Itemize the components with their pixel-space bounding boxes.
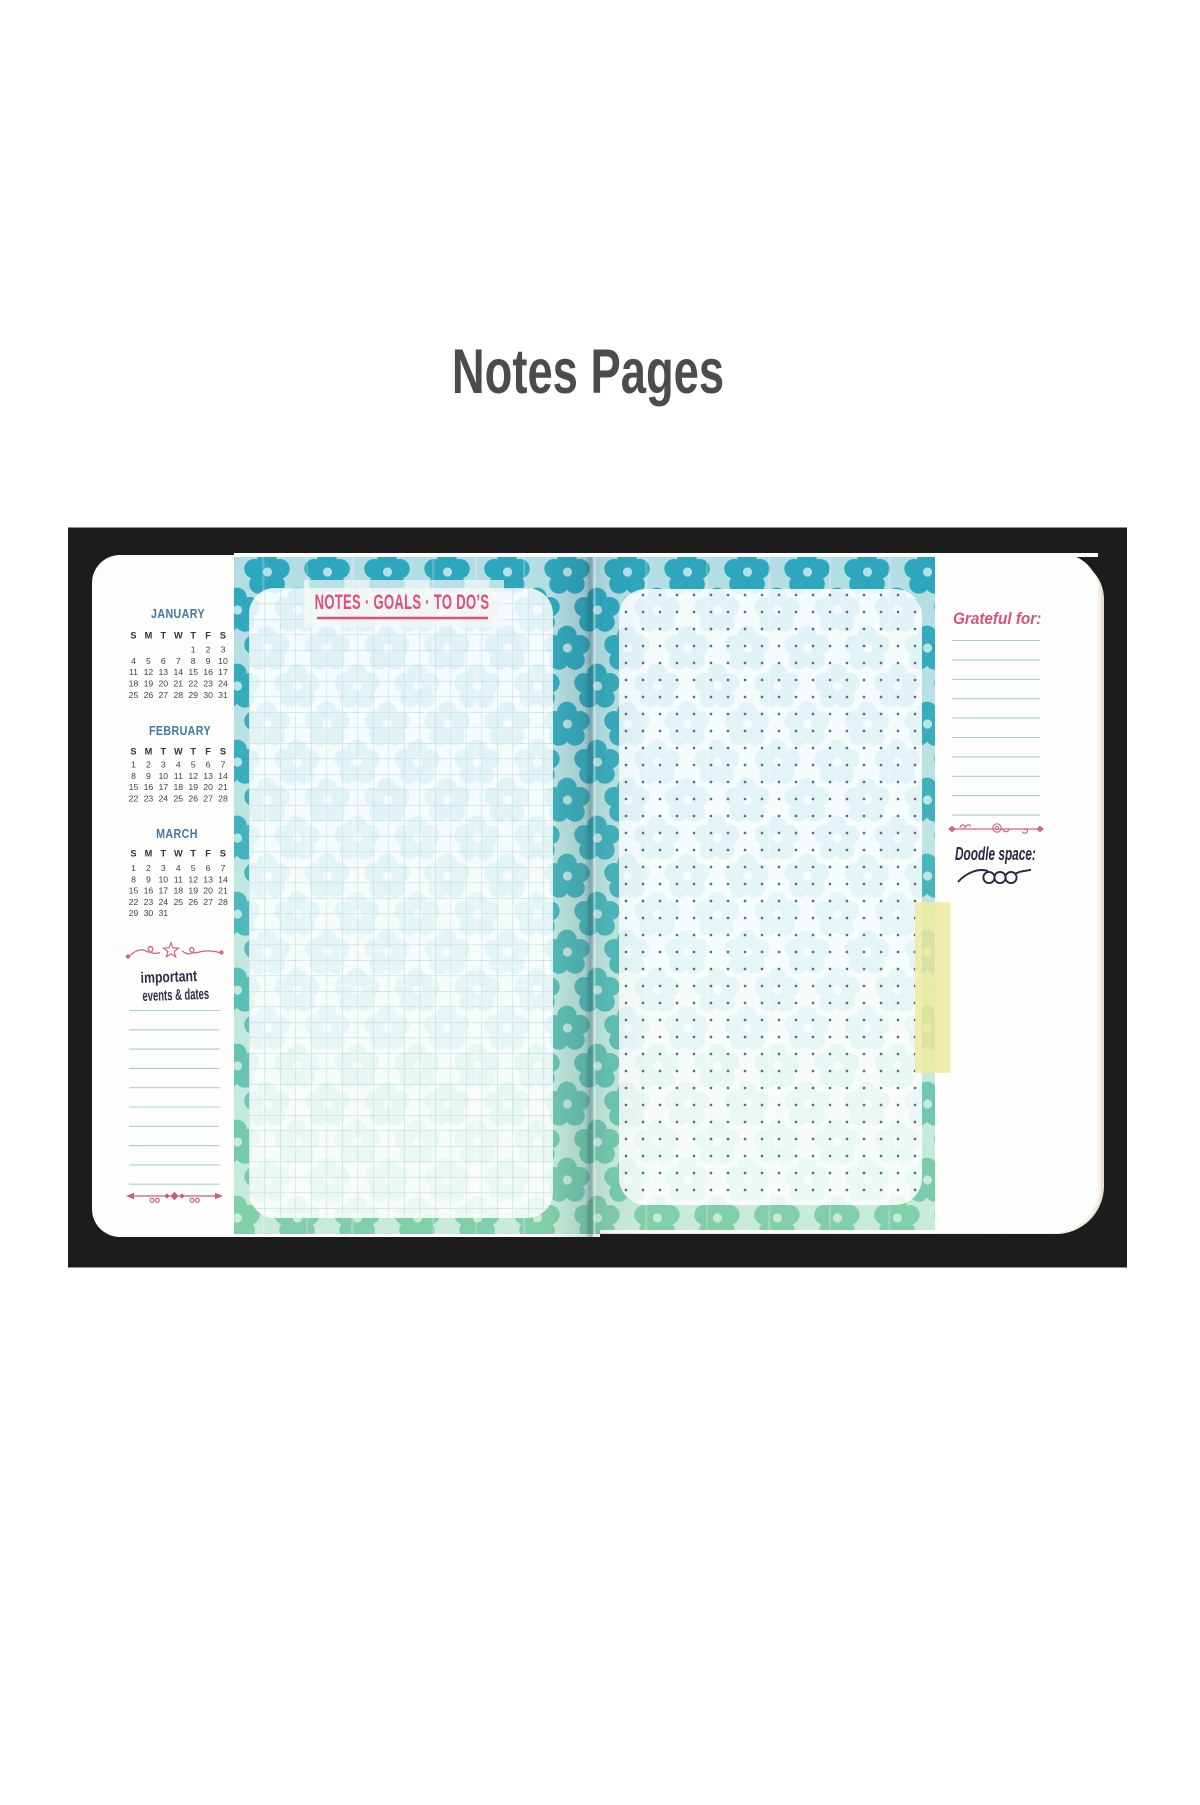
svg-text:17: 17 [218, 667, 228, 677]
svg-text:MARCH: MARCH [156, 826, 198, 841]
svg-text:22: 22 [129, 794, 139, 804]
svg-text:5: 5 [191, 863, 196, 873]
svg-text:4: 4 [131, 656, 136, 666]
svg-text:18: 18 [129, 679, 139, 689]
svg-text:12: 12 [144, 667, 154, 677]
svg-text:F: F [205, 631, 211, 641]
svg-text:27: 27 [203, 897, 213, 907]
svg-text:6: 6 [161, 656, 166, 666]
svg-text:9: 9 [206, 656, 211, 666]
svg-text:14: 14 [218, 771, 228, 781]
svg-text:5: 5 [146, 656, 151, 666]
svg-text:30: 30 [144, 908, 154, 918]
svg-text:17: 17 [158, 886, 168, 896]
svg-text:15: 15 [129, 886, 139, 896]
svg-text:S: S [220, 849, 226, 859]
svg-text:S: S [220, 747, 226, 757]
svg-text:17: 17 [158, 782, 168, 792]
svg-text:25: 25 [173, 897, 183, 907]
svg-text:1: 1 [191, 645, 196, 655]
svg-text:23: 23 [144, 897, 154, 907]
svg-text:18: 18 [173, 782, 183, 792]
svg-text:28: 28 [218, 794, 228, 804]
svg-text:M: M [145, 631, 153, 641]
svg-text:3: 3 [221, 645, 226, 655]
svg-text:T: T [160, 747, 166, 757]
svg-text:7: 7 [221, 863, 226, 873]
svg-text:16: 16 [144, 886, 154, 896]
svg-text:W: W [174, 849, 183, 859]
svg-text:NOTES · GOALS · TO DO’S: NOTES · GOALS · TO DO’S [315, 590, 490, 614]
svg-text:20: 20 [158, 679, 168, 689]
svg-text:Notes Pages: Notes Pages [452, 336, 724, 407]
svg-text:F: F [205, 849, 211, 859]
svg-text:3: 3 [161, 863, 166, 873]
svg-text:10: 10 [158, 771, 168, 781]
svg-text:15: 15 [188, 667, 198, 677]
svg-text:20: 20 [203, 782, 213, 792]
svg-text:M: M [145, 747, 153, 757]
svg-text:18: 18 [173, 886, 183, 896]
svg-text:important: important [140, 967, 197, 987]
svg-text:12: 12 [188, 874, 198, 884]
svg-text:24: 24 [218, 679, 228, 689]
svg-text:28: 28 [173, 690, 183, 700]
svg-text:T: T [190, 849, 196, 859]
svg-text:24: 24 [158, 897, 168, 907]
svg-text:13: 13 [203, 771, 213, 781]
svg-text:19: 19 [144, 679, 154, 689]
svg-text:11: 11 [174, 771, 183, 781]
svg-text:7: 7 [176, 656, 181, 666]
svg-text:11: 11 [174, 874, 183, 884]
svg-text:events & dates: events & dates [142, 984, 209, 1004]
svg-text:10: 10 [158, 874, 168, 884]
svg-text:28: 28 [218, 897, 228, 907]
svg-text:16: 16 [144, 782, 154, 792]
svg-text:6: 6 [206, 760, 211, 770]
svg-text:14: 14 [218, 874, 228, 884]
svg-text:T: T [160, 631, 166, 641]
svg-text:3: 3 [161, 760, 166, 770]
svg-text:12: 12 [188, 771, 198, 781]
svg-text:27: 27 [203, 794, 213, 804]
svg-text:4: 4 [176, 863, 181, 873]
svg-text:11: 11 [129, 667, 138, 677]
svg-text:21: 21 [218, 886, 228, 896]
svg-text:JANUARY: JANUARY [151, 606, 205, 621]
svg-text:5: 5 [191, 760, 196, 770]
svg-text:9: 9 [146, 771, 151, 781]
svg-text:8: 8 [191, 656, 196, 666]
svg-text:6: 6 [206, 863, 211, 873]
svg-text:15: 15 [129, 782, 139, 792]
svg-text:26: 26 [188, 794, 198, 804]
svg-text:Grateful for:: Grateful for: [953, 609, 1041, 628]
svg-text:19: 19 [188, 782, 198, 792]
svg-text:14: 14 [173, 667, 183, 677]
svg-text:F: F [205, 747, 211, 757]
svg-text:31: 31 [218, 690, 228, 700]
svg-text:4: 4 [176, 760, 181, 770]
svg-text:S: S [130, 849, 136, 859]
svg-text:2: 2 [146, 863, 151, 873]
svg-text:FEBRUARY: FEBRUARY [149, 723, 211, 738]
svg-text:9: 9 [146, 874, 151, 884]
svg-text:19: 19 [188, 886, 198, 896]
svg-text:13: 13 [203, 874, 213, 884]
svg-text:16: 16 [203, 667, 213, 677]
svg-text:7: 7 [221, 760, 226, 770]
svg-text:W: W [174, 747, 183, 757]
svg-text:29: 29 [129, 908, 139, 918]
svg-text:22: 22 [188, 679, 198, 689]
svg-text:8: 8 [131, 874, 136, 884]
svg-text:2: 2 [146, 760, 151, 770]
svg-text:T: T [160, 849, 166, 859]
svg-text:10: 10 [218, 656, 228, 666]
svg-text:2: 2 [206, 645, 211, 655]
svg-text:23: 23 [144, 794, 154, 804]
svg-text:Doodle space:: Doodle space: [955, 845, 1036, 865]
svg-text:S: S [220, 631, 226, 641]
svg-text:25: 25 [173, 794, 183, 804]
svg-text:26: 26 [144, 690, 154, 700]
svg-text:T: T [190, 631, 196, 641]
svg-text:T: T [190, 747, 196, 757]
svg-text:1: 1 [131, 863, 136, 873]
svg-text:24: 24 [158, 794, 168, 804]
svg-text:22: 22 [129, 897, 139, 907]
svg-text:31: 31 [158, 908, 168, 918]
svg-text:27: 27 [158, 690, 168, 700]
svg-text:21: 21 [218, 782, 228, 792]
svg-text:M: M [145, 849, 153, 859]
svg-text:21: 21 [173, 679, 183, 689]
svg-text:25: 25 [129, 690, 139, 700]
svg-text:23: 23 [203, 679, 213, 689]
svg-text:8: 8 [131, 771, 136, 781]
svg-text:S: S [130, 747, 136, 757]
svg-text:1: 1 [131, 760, 136, 770]
svg-text:29: 29 [188, 690, 198, 700]
svg-text:S: S [130, 631, 136, 641]
svg-text:13: 13 [158, 667, 168, 677]
svg-text:26: 26 [188, 897, 198, 907]
svg-text:20: 20 [203, 886, 213, 896]
svg-text:30: 30 [203, 690, 213, 700]
svg-text:W: W [174, 631, 183, 641]
